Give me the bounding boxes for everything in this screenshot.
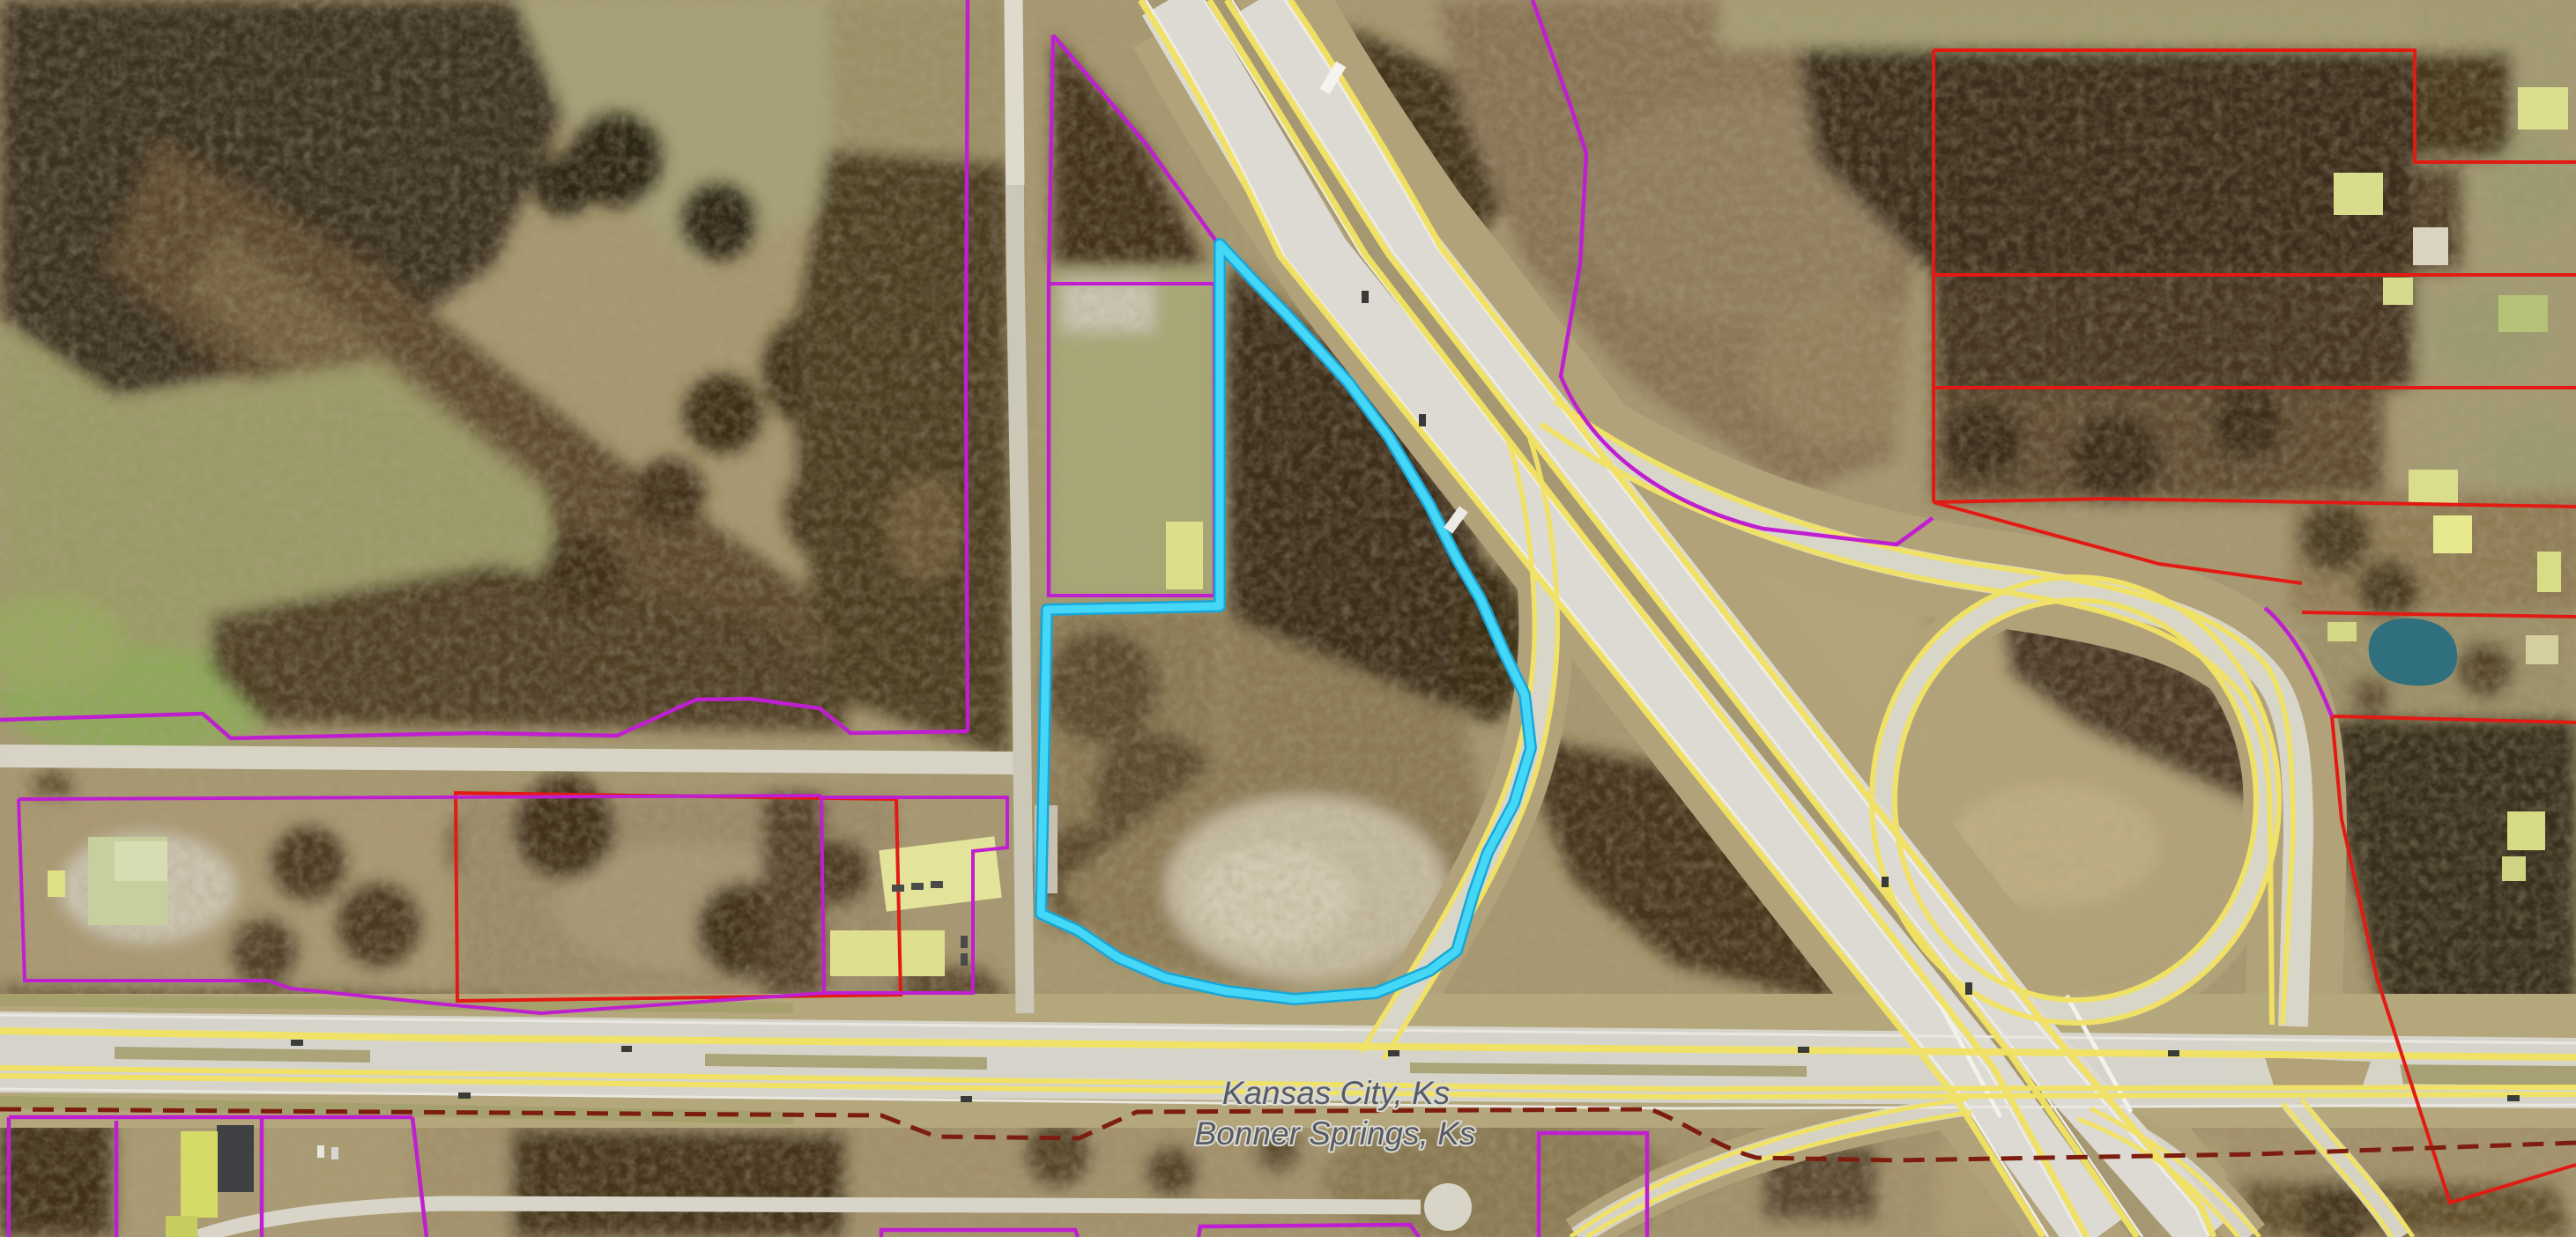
svg-text:Bonner Springs, Ks: Bonner Springs, Ks xyxy=(1195,1115,1476,1152)
svg-text:Kansas City, Ks: Kansas City, Ks xyxy=(1222,1075,1450,1111)
